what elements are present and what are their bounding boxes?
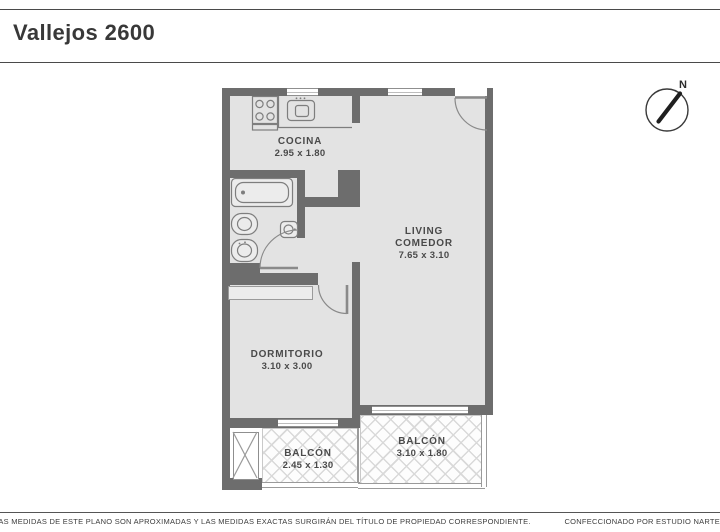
room-label-living: LIVING COMEDOR 7.65 x 3.10 [364,226,484,262]
room-name: BALCÓN [362,436,482,448]
north-label: N [679,79,687,91]
room-dims: 7.65 x 3.10 [364,250,484,262]
bedroom-wardrobe [228,286,313,300]
room-label-cocina: COCINA 2.95 x 1.80 [240,136,360,160]
wall-bedroom-living [352,262,360,418]
room-label-balcon-left: BALCÓN 2.45 x 1.30 [248,448,368,472]
wall-bathroom-right [297,178,305,238]
railing-balcony-right-bottom [358,483,485,489]
header-rule [0,62,720,63]
railing-balcony-left [262,482,360,488]
footer-disclaimer: LAS MEDIDAS DE ESTE PLANO SON APROXIMADA… [0,517,531,526]
room-label-dormitorio: DORMITORIO 3.10 x 3.00 [227,349,347,373]
compass-needle [659,94,681,122]
footer-rule [0,512,720,513]
compass-icon [646,89,688,131]
page-title: Vallejos 2600 [13,20,155,46]
wall-top [222,88,493,96]
window-kitchen [287,88,318,96]
room-name-2: COMEDOR [364,238,484,250]
entrance-door-gap [455,88,487,96]
wall-kitchen-bottom [222,170,305,178]
floor-plan-page: Vallejos 2600 [0,0,720,532]
room-dims: 2.45 x 1.30 [248,460,368,472]
footer-credit: CONFECCIONADO POR ESTUDIO NARTE [564,517,720,526]
top-rule [0,9,720,10]
room-name: BALCÓN [248,448,368,460]
window-bedroom-balcony [278,419,338,427]
bedroom-floor-extension [230,405,352,418]
wall-bedroom-top [222,273,318,285]
room-dims: 3.10 x 1.80 [362,448,482,460]
room-name: COCINA [240,136,360,148]
room-name: LIVING [364,226,484,238]
wall-right [485,88,493,415]
room-name: DORMITORIO [227,349,347,361]
room-label-balcon-right: BALCÓN 3.10 x 1.80 [362,436,482,460]
room-dims: 3.10 x 3.00 [227,361,347,373]
room-dims: 2.95 x 1.80 [240,148,360,160]
wall-hall-arm [300,197,360,207]
wall-kitchen-stub [352,96,360,123]
wall-bathroom-bottom [230,263,260,273]
window-living-balcony [372,406,468,414]
window-living-top [388,88,422,96]
